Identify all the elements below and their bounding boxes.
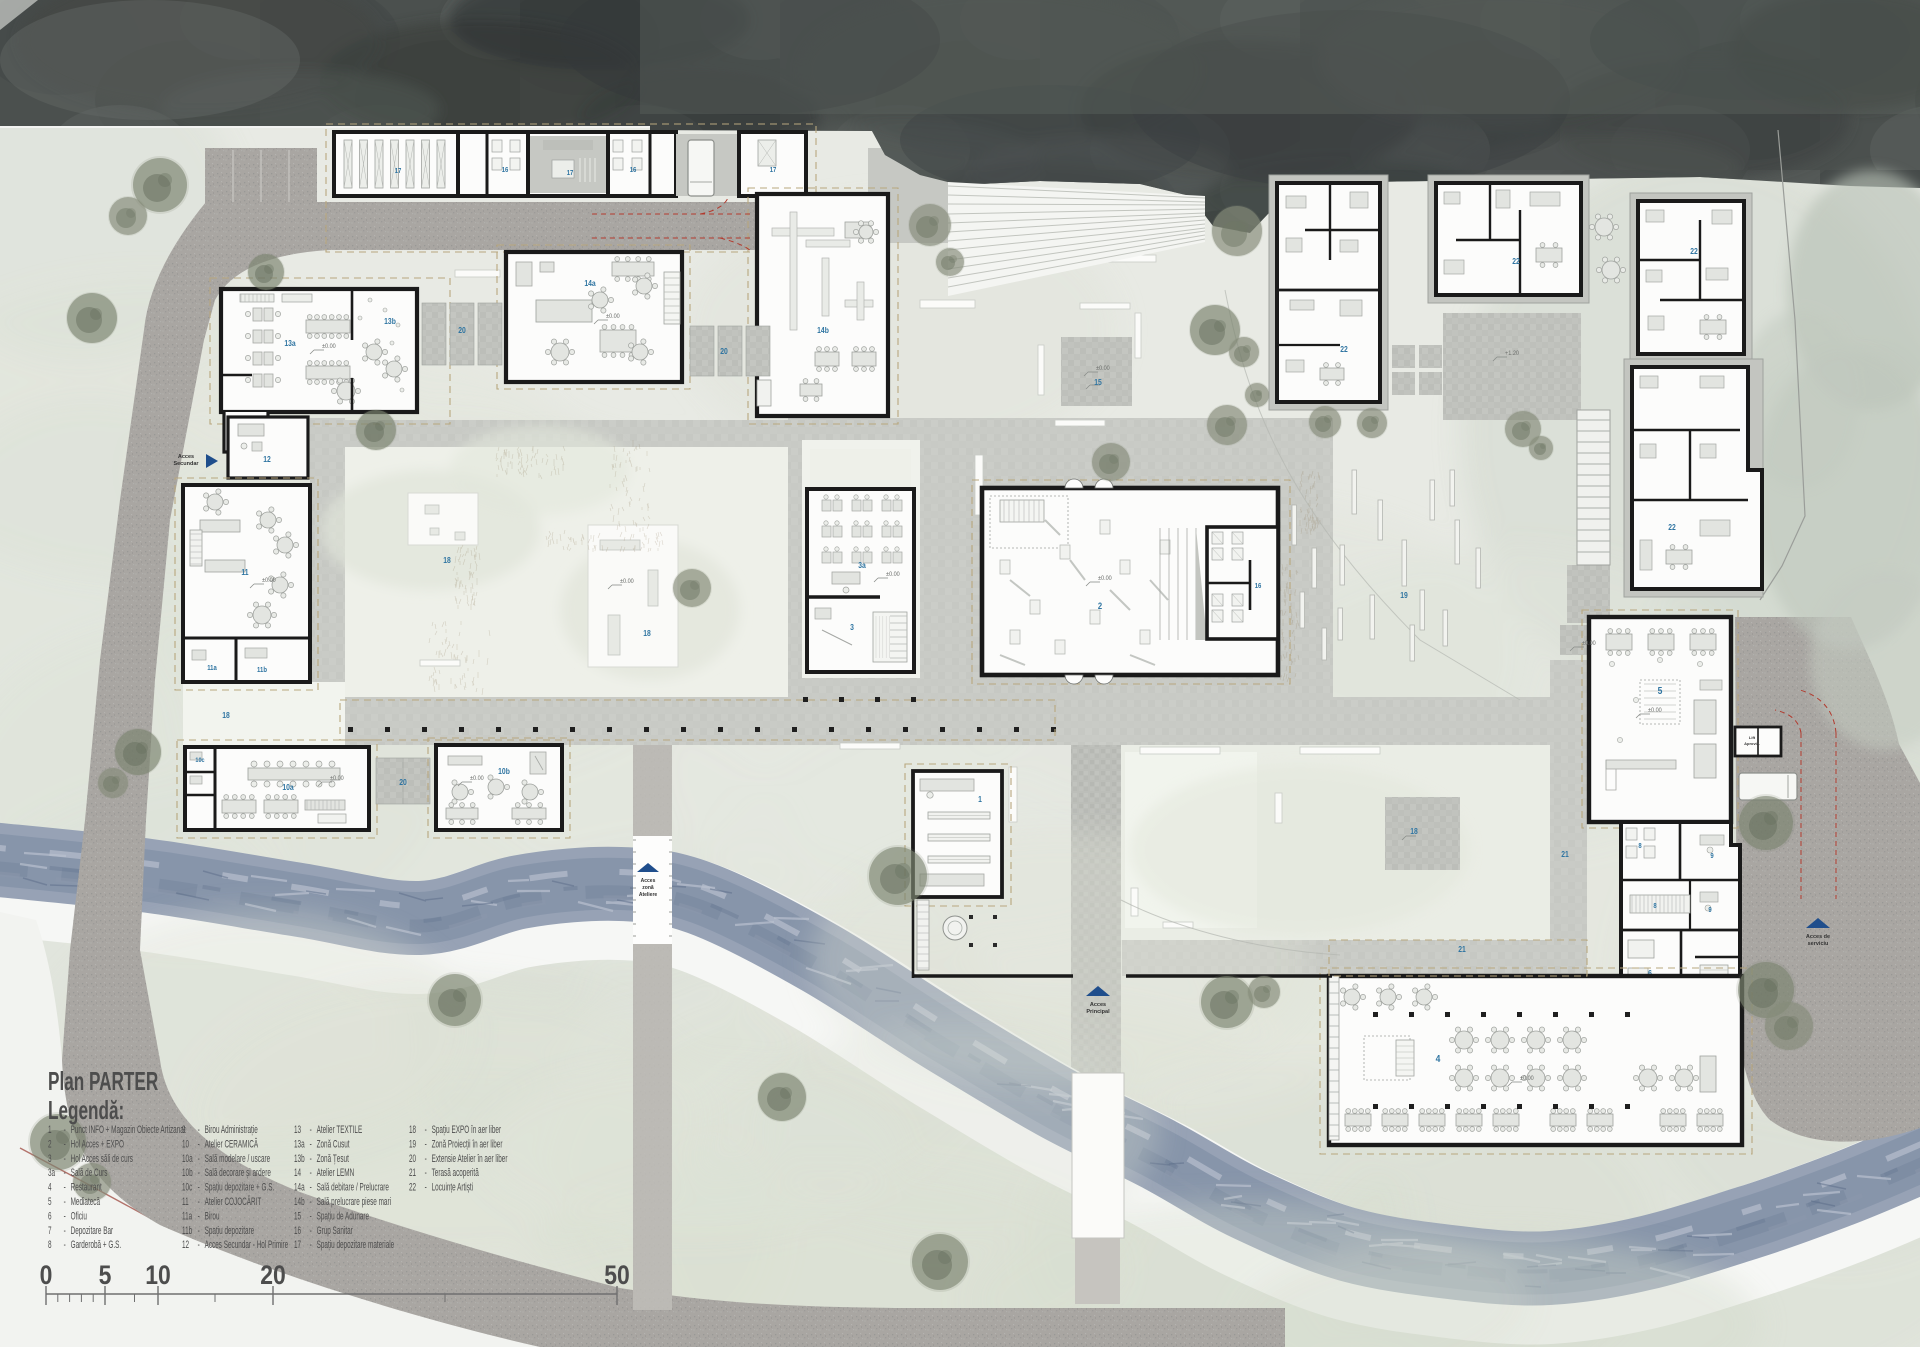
svg-text:Birou Administrație: Birou Administrație (205, 1123, 258, 1135)
svg-text:13: 13 (294, 1123, 301, 1135)
svg-text:11: 11 (241, 567, 248, 577)
svg-text:-: - (310, 1224, 312, 1236)
svg-text:20: 20 (458, 325, 466, 335)
svg-text:2: 2 (1098, 600, 1103, 611)
svg-text:-: - (425, 1152, 427, 1164)
svg-text:±0.00: ±0.00 (606, 314, 620, 320)
svg-text:-: - (310, 1238, 312, 1250)
svg-text:14: 14 (294, 1166, 301, 1178)
svg-text:5: 5 (48, 1195, 52, 1207)
svg-text:Mediatecă: Mediatecă (71, 1195, 100, 1207)
svg-text:-: - (198, 1152, 200, 1164)
svg-text:21: 21 (1561, 849, 1569, 859)
svg-text:20: 20 (409, 1152, 416, 1164)
svg-text:1: 1 (48, 1123, 52, 1135)
svg-text:14a: 14a (294, 1181, 305, 1193)
svg-text:16: 16 (294, 1224, 301, 1236)
svg-text:Oficiu: Oficiu (71, 1210, 87, 1222)
svg-text:Zonă Proiecții în aer liber: Zonă Proiecții în aer liber (432, 1138, 503, 1150)
svg-text:Locuințe Artiști: Locuințe Artiști (432, 1181, 473, 1193)
svg-text:-: - (64, 1123, 66, 1135)
svg-text:4: 4 (1436, 1053, 1441, 1064)
svg-text:-: - (64, 1210, 66, 1222)
svg-text:22: 22 (1668, 522, 1676, 532)
svg-text:3a: 3a (48, 1166, 55, 1178)
svg-text:16: 16 (630, 167, 637, 175)
svg-text:Ateliere: Ateliere (639, 892, 658, 898)
svg-text:10: 10 (145, 1260, 171, 1290)
svg-text:Atelier TEXTILE: Atelier TEXTILE (317, 1123, 363, 1135)
svg-text:+1.20: +1.20 (1505, 351, 1520, 357)
svg-text:Sală modelare / uscare: Sală modelare / uscare (205, 1152, 271, 1164)
svg-text:Spațiu depozitare + G.S.: Spațiu depozitare + G.S. (205, 1181, 275, 1193)
svg-text:Atelier LEMN: Atelier LEMN (317, 1166, 355, 1178)
svg-text:-: - (198, 1210, 200, 1222)
svg-text:18: 18 (643, 628, 651, 638)
svg-text:-: - (198, 1138, 200, 1150)
svg-text:-: - (425, 1181, 427, 1193)
svg-text:-: - (425, 1166, 427, 1178)
svg-text:11b: 11b (182, 1224, 192, 1236)
svg-text:-: - (310, 1138, 312, 1150)
svg-text:Birou: Birou (205, 1210, 220, 1222)
svg-text:Spațiu de Adunare: Spațiu de Adunare (317, 1210, 369, 1222)
svg-text:13a: 13a (294, 1138, 305, 1150)
svg-text:Extensie Atelier în aer liber: Extensie Atelier în aer liber (432, 1152, 508, 1164)
svg-text:10a: 10a (182, 1152, 193, 1164)
svg-text:Acces de: Acces de (1806, 934, 1830, 940)
svg-text:19: 19 (1400, 590, 1408, 600)
svg-text:0: 0 (40, 1260, 53, 1290)
svg-text:4: 4 (48, 1181, 52, 1193)
svg-text:-: - (198, 1181, 200, 1193)
svg-text:±0.00: ±0.00 (1098, 576, 1112, 582)
svg-text:17: 17 (294, 1238, 301, 1250)
svg-text:10b: 10b (182, 1166, 193, 1178)
svg-text:9: 9 (1708, 907, 1712, 915)
svg-text:19: 19 (409, 1138, 416, 1150)
svg-text:8: 8 (48, 1238, 52, 1250)
svg-text:-: - (310, 1181, 312, 1193)
svg-text:-: - (64, 1195, 66, 1207)
svg-text:-: - (64, 1238, 66, 1250)
svg-text:Atelier CERAMICĂ: Atelier CERAMICĂ (205, 1138, 258, 1150)
svg-text:-: - (198, 1195, 200, 1207)
svg-text:Zonă Cusut: Zonă Cusut (317, 1138, 350, 1150)
svg-text:-: - (64, 1138, 66, 1150)
svg-text:12: 12 (263, 454, 271, 464)
svg-text:Spațiu depozitare: Spațiu depozitare (205, 1224, 255, 1236)
svg-text:22: 22 (1340, 344, 1348, 354)
svg-text:Spațiu EXPO în aer liber: Spațiu EXPO în aer liber (432, 1123, 501, 1135)
svg-text:21: 21 (1458, 944, 1466, 954)
svg-text:Acces: Acces (1090, 1002, 1106, 1008)
svg-text:13b: 13b (294, 1152, 305, 1164)
svg-text:Hol Acces + EXPO: Hol Acces + EXPO (71, 1138, 124, 1150)
svg-text:20: 20 (260, 1260, 286, 1290)
svg-text:Plan PARTER: Plan PARTER (48, 1066, 158, 1096)
svg-text:Punct INFO + Magazin Obiecte A: Punct INFO + Magazin Obiecte Artizanat (71, 1123, 186, 1135)
svg-text:11: 11 (182, 1195, 189, 1207)
svg-text:Sală prelucrare piese mari: Sală prelucrare piese mari (317, 1195, 391, 1207)
svg-text:13b: 13b (384, 316, 396, 326)
svg-text:15: 15 (1094, 377, 1102, 387)
svg-text:9: 9 (1710, 853, 1714, 861)
svg-text:11a: 11a (207, 665, 217, 673)
svg-text:Acces: Acces (641, 878, 656, 884)
svg-text:zonă: zonă (642, 885, 654, 891)
svg-text:Atelier COJOCĂRIT: Atelier COJOCĂRIT (205, 1195, 262, 1207)
svg-text:3a: 3a (858, 560, 866, 570)
svg-text:14b: 14b (294, 1195, 305, 1207)
svg-text:13a: 13a (284, 338, 296, 348)
svg-text:Lift: Lift (1749, 735, 1756, 740)
svg-text:-: - (310, 1210, 312, 1222)
svg-text:-: - (64, 1224, 66, 1236)
svg-text:18: 18 (409, 1123, 416, 1135)
svg-text:7: 7 (48, 1224, 52, 1236)
svg-text:2: 2 (48, 1138, 52, 1150)
svg-text:Depozitare Bar: Depozitare Bar (71, 1224, 114, 1236)
svg-text:16: 16 (502, 167, 509, 175)
svg-text:9: 9 (182, 1123, 186, 1135)
svg-text:Principal: Principal (1086, 1009, 1110, 1015)
svg-text:14b: 14b (817, 325, 829, 335)
svg-text:11a: 11a (182, 1210, 192, 1222)
svg-text:Terasă acoperită: Terasă acoperită (432, 1166, 479, 1178)
svg-text:12: 12 (182, 1238, 189, 1250)
svg-text:-: - (198, 1238, 200, 1250)
svg-text:-: - (425, 1123, 427, 1135)
svg-text:18: 18 (443, 555, 451, 565)
svg-text:15: 15 (294, 1210, 301, 1222)
svg-text:Spațiu depozitare materiale: Spațiu depozitare materiale (317, 1238, 395, 1250)
svg-text:±0.00: ±0.00 (470, 776, 484, 782)
svg-text:Sală de Curs: Sală de Curs (71, 1166, 108, 1178)
svg-text:±0.00: ±0.00 (330, 776, 344, 782)
svg-text:50: 50 (604, 1260, 630, 1290)
svg-text:Zonă Țesut: Zonă Țesut (317, 1152, 350, 1164)
svg-text:-: - (425, 1138, 427, 1150)
svg-text:Aproviz.: Aproviz. (1744, 741, 1760, 746)
svg-text:-: - (198, 1123, 200, 1135)
svg-text:10c: 10c (182, 1181, 193, 1193)
svg-text:17: 17 (567, 170, 574, 178)
svg-text:-: - (310, 1166, 312, 1178)
svg-text:Sală debitare / Prelucrare: Sală debitare / Prelucrare (317, 1181, 389, 1193)
svg-text:±0.00: ±0.00 (886, 572, 900, 578)
svg-text:8: 8 (1653, 903, 1657, 911)
svg-text:17: 17 (395, 168, 402, 176)
svg-text:Legendă:: Legendă: (48, 1095, 124, 1125)
svg-text:18: 18 (222, 710, 230, 720)
svg-text:22: 22 (409, 1181, 416, 1193)
svg-text:±0.00: ±0.00 (262, 578, 276, 584)
svg-text:8: 8 (1638, 843, 1642, 851)
svg-text:Restaurant: Restaurant (71, 1181, 103, 1193)
svg-text:10a: 10a (282, 782, 294, 792)
svg-text:±0.00: ±0.00 (1520, 1076, 1534, 1082)
svg-text:Acces: Acces (178, 454, 194, 460)
svg-text:-: - (64, 1181, 66, 1193)
svg-text:16: 16 (1255, 583, 1262, 591)
svg-text:±0.00: ±0.00 (1648, 708, 1662, 714)
svg-text:10b: 10b (498, 766, 510, 776)
svg-text:±0.00: ±0.00 (620, 579, 634, 585)
svg-text:-: - (310, 1152, 312, 1164)
svg-text:±0.00: ±0.00 (322, 344, 336, 350)
svg-text:serviciu: serviciu (1808, 941, 1829, 947)
svg-text:±0.00: ±0.00 (1582, 641, 1596, 647)
svg-text:-: - (64, 1152, 66, 1164)
svg-text:Grup Sanitar: Grup Sanitar (317, 1224, 353, 1236)
svg-text:Acces Secundar - Hol Primire: Acces Secundar - Hol Primire (205, 1238, 289, 1250)
svg-text:1: 1 (978, 794, 982, 804)
svg-text:-: - (198, 1224, 200, 1236)
svg-text:20: 20 (720, 346, 728, 356)
svg-text:Hol Acces săli de curs: Hol Acces săli de curs (71, 1152, 134, 1164)
svg-text:5: 5 (1658, 685, 1663, 696)
svg-text:6: 6 (48, 1210, 52, 1222)
svg-text:5: 5 (99, 1260, 112, 1290)
svg-text:11b: 11b (257, 667, 267, 675)
svg-text:-: - (310, 1195, 312, 1207)
svg-text:10c: 10c (195, 758, 205, 764)
svg-text:14a: 14a (584, 278, 596, 288)
svg-text:Sală decorare și ardere: Sală decorare și ardere (205, 1166, 271, 1178)
svg-text:-: - (64, 1166, 66, 1178)
svg-text:3: 3 (850, 622, 854, 632)
svg-text:18: 18 (1410, 826, 1418, 836)
svg-text:±0.00: ±0.00 (1096, 366, 1110, 372)
svg-text:22: 22 (1690, 246, 1698, 256)
svg-text:20: 20 (399, 777, 407, 787)
svg-text:3: 3 (48, 1152, 52, 1164)
svg-text:17: 17 (770, 167, 777, 175)
svg-text:Garderobă + G.S.: Garderobă + G.S. (71, 1238, 121, 1250)
svg-text:Secundar: Secundar (173, 461, 199, 467)
svg-text:-: - (310, 1123, 312, 1135)
svg-text:22: 22 (1512, 256, 1520, 266)
svg-text:-: - (198, 1166, 200, 1178)
svg-text:21: 21 (409, 1166, 416, 1178)
svg-text:10: 10 (182, 1138, 189, 1150)
